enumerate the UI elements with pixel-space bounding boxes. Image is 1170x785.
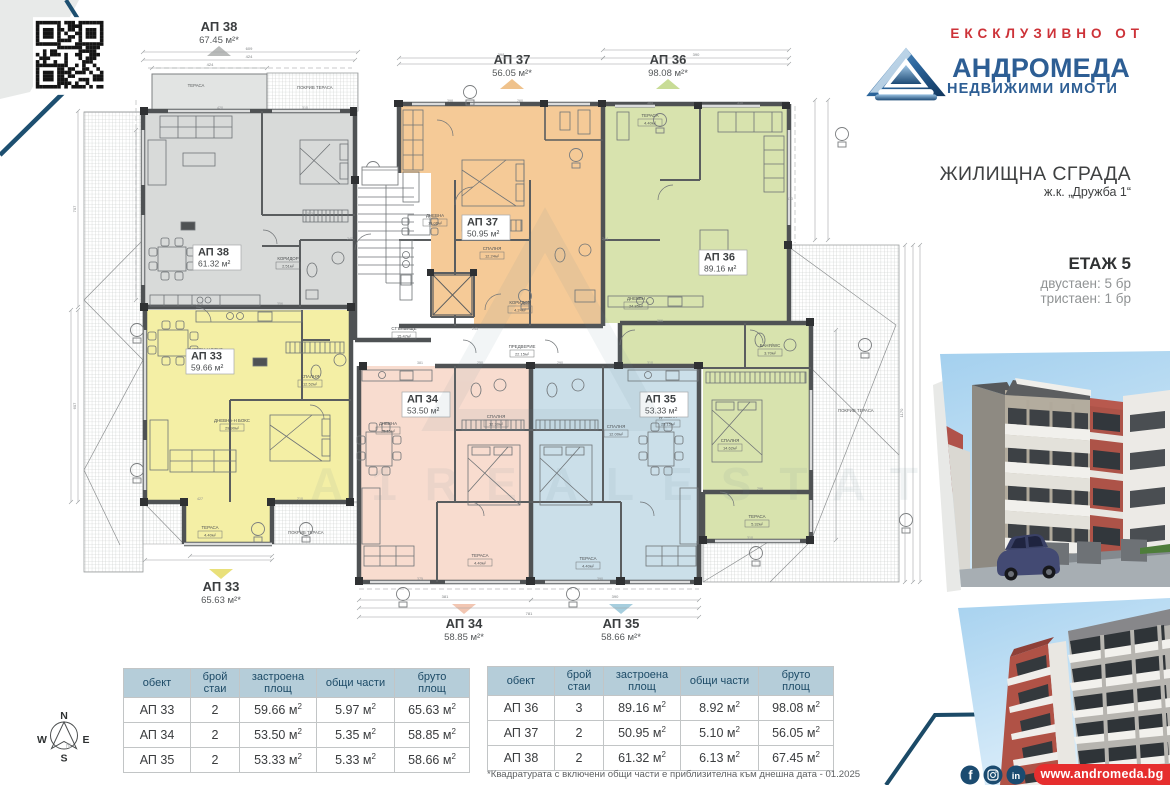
svg-text:12.24м²: 12.24м² — [485, 253, 500, 258]
svg-text:БАНЯ/WC: БАНЯ/WC — [760, 343, 781, 348]
svg-text:ПОКРИВ ТЕРАСА: ПОКРИВ ТЕРАСА — [297, 85, 333, 90]
svg-text:4.40м²: 4.40м² — [204, 532, 217, 537]
svg-text:707: 707 — [72, 205, 77, 212]
svg-text:424: 424 — [207, 62, 214, 67]
svg-text:АП 36: АП 36 — [650, 52, 687, 67]
svg-text:210: 210 — [297, 497, 303, 501]
svg-text:S: S — [60, 753, 67, 765]
svg-text:381: 381 — [417, 361, 423, 365]
svg-text:310: 310 — [737, 101, 743, 105]
svg-text:АП 35: АП 35 — [603, 616, 640, 631]
svg-text:АП 33: АП 33 — [191, 351, 222, 363]
svg-text:781: 781 — [526, 611, 533, 616]
svg-text:260: 260 — [517, 99, 523, 103]
svg-text:61.32 м²: 61.32 м² — [198, 259, 230, 269]
svg-text:58.66 м²*: 58.66 м²* — [601, 632, 641, 643]
svg-text:СПАЛНЯ: СПАЛНЯ — [483, 246, 502, 251]
svg-text:290: 290 — [557, 361, 563, 365]
svg-text:67.45 м²*: 67.45 м²* — [199, 35, 239, 46]
svg-text:4.24м²: 4.24м² — [514, 307, 527, 312]
svg-text:313: 313 — [307, 212, 313, 216]
svg-text:98.08 м²*: 98.08 м²* — [648, 68, 688, 79]
svg-text:385: 385 — [647, 101, 653, 105]
svg-text:381: 381 — [442, 594, 449, 599]
svg-text:244: 244 — [602, 237, 608, 241]
svg-text:427: 427 — [197, 497, 203, 501]
svg-text:АП 36: АП 36 — [704, 252, 735, 264]
svg-text:ТЕРАСА: ТЕРАСА — [748, 514, 765, 519]
svg-text:19.06м²: 19.06м² — [428, 220, 443, 225]
svg-text:24.85м²: 24.85м² — [629, 303, 644, 308]
svg-text:ПРЕДВЕРИЕ: ПРЕДВЕРИЕ — [509, 344, 536, 349]
svg-text:ТЕРАСА: ТЕРАСА — [201, 525, 218, 530]
svg-text:ТЕРАСА: ТЕРАСА — [641, 113, 658, 118]
svg-text:АП 38: АП 38 — [201, 19, 238, 34]
svg-text:4.40м²: 4.40м² — [644, 120, 657, 125]
svg-text:5.32м²: 5.32м² — [751, 521, 764, 526]
svg-text:СПАЛНЯ: СПАЛНЯ — [721, 438, 740, 443]
svg-text:390: 390 — [693, 52, 700, 57]
svg-text:29.90м²: 29.90м² — [225, 425, 240, 430]
svg-text:КОРИДОР: КОРИДОР — [277, 256, 298, 261]
svg-text:366: 366 — [657, 319, 663, 323]
svg-text:АП 37: АП 37 — [467, 217, 498, 229]
svg-text:АП 38: АП 38 — [198, 247, 229, 259]
svg-text:2.51м²: 2.51м² — [282, 263, 295, 268]
svg-text:398: 398 — [498, 52, 505, 57]
svg-text:W: W — [37, 734, 47, 746]
svg-text:50.95 м²: 50.95 м² — [467, 229, 499, 239]
svg-text:240: 240 — [347, 237, 353, 241]
svg-text:АП 34: АП 34 — [446, 616, 483, 631]
svg-text:310: 310 — [302, 106, 308, 110]
svg-text:59.66 м²: 59.66 м² — [191, 363, 223, 373]
svg-text:12.00м²: 12.00м² — [609, 431, 624, 436]
svg-text:ПОКРИВ ТЕРАСА: ПОКРИВ ТЕРАСА — [288, 530, 324, 535]
svg-text:370: 370 — [787, 197, 793, 201]
svg-text:in: in — [1012, 771, 1021, 782]
svg-text:3.70м²: 3.70м² — [764, 350, 777, 355]
svg-text:СПАЛНЯ: СПАЛНЯ — [301, 374, 320, 379]
svg-text:22.15м²: 22.15м² — [515, 351, 530, 356]
svg-text:E: E — [82, 734, 89, 746]
svg-text:424: 424 — [246, 54, 253, 59]
svg-text:4.40м²: 4.40м² — [582, 563, 595, 568]
svg-text:СТЪЛБИЩЕ: СТЪЛБИЩЕ — [391, 326, 416, 331]
svg-text:398: 398 — [447, 99, 453, 103]
svg-text:14.62м²: 14.62м² — [723, 445, 738, 450]
svg-text:56.05 м²*: 56.05 м²* — [492, 68, 532, 79]
svg-text:1170: 1170 — [899, 408, 904, 417]
svg-text:310: 310 — [647, 361, 653, 365]
svg-text:89.16 м²: 89.16 м² — [704, 264, 736, 274]
svg-text:АП 33: АП 33 — [203, 579, 240, 594]
svg-text:ПОКРИВ ТЕРАСА: ПОКРИВ ТЕРАСА — [838, 408, 874, 413]
svg-text:N: N — [60, 710, 68, 722]
svg-text:424: 424 — [197, 302, 203, 306]
svg-text:ДНЕВЕН: ДНЕВЕН — [627, 296, 645, 301]
svg-text:356: 356 — [277, 302, 283, 306]
svg-text:310: 310 — [747, 536, 753, 540]
svg-text:15.47м²: 15.47м² — [397, 333, 412, 338]
svg-text:АП 34: АП 34 — [407, 394, 439, 406]
svg-text:607: 607 — [72, 402, 77, 409]
svg-text:4.40м²: 4.40м² — [474, 560, 487, 565]
svg-text:390: 390 — [612, 594, 619, 599]
svg-text:12.52м²: 12.52м² — [303, 381, 318, 386]
svg-text:375: 375 — [417, 577, 423, 581]
svg-text:ТЕРАСА: ТЕРАСА — [471, 553, 488, 558]
svg-text:609: 609 — [246, 46, 253, 51]
svg-text:25.15м²: 25.15м² — [381, 428, 396, 433]
svg-text:ТЕРАСА: ТЕРАСА — [579, 556, 596, 561]
svg-text:65.63 м²*: 65.63 м²* — [201, 595, 241, 606]
svg-text:420: 420 — [217, 106, 223, 110]
svg-text:ДНЕВНА-Н БОКС: ДНЕВНА-Н БОКС — [214, 418, 250, 423]
svg-text:58.85 м²*: 58.85 м²* — [444, 632, 484, 643]
svg-text:N: N — [66, 741, 71, 750]
svg-text:ДНЕВНА: ДНЕВНА — [379, 421, 397, 426]
svg-text:390: 390 — [597, 577, 603, 581]
svg-text:ДНЕВНА: ДНЕВНА — [426, 213, 444, 218]
svg-text:A1REALESTATE: A1REALESTATE — [310, 458, 1005, 510]
